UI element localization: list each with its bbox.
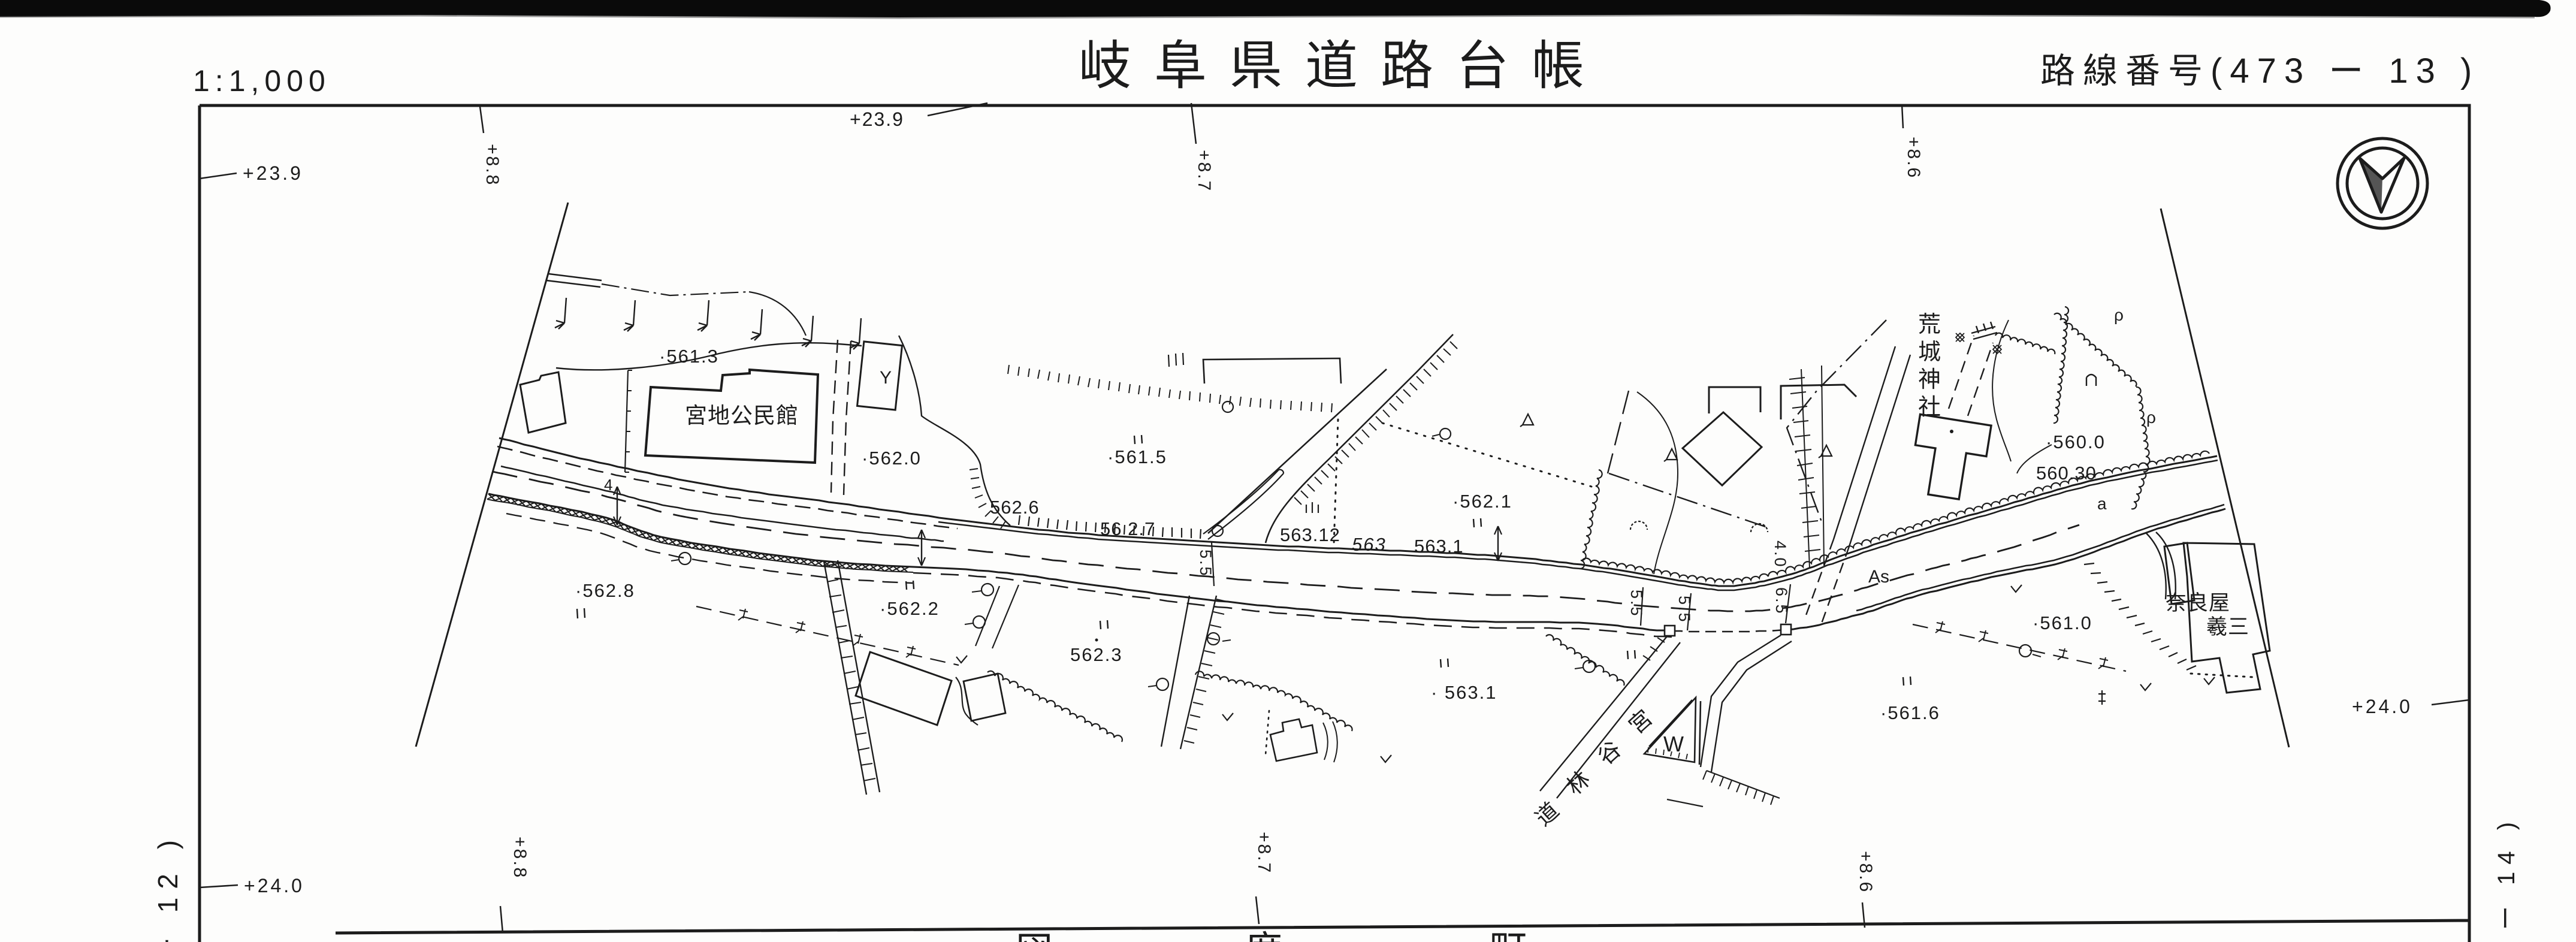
svg-text:度: 度 — [1245, 929, 1282, 942]
svg-text:563.1: 563.1 — [1414, 536, 1464, 557]
svg-text:· 563.1: · 563.1 — [1431, 682, 1497, 703]
svg-text:6.5: 6.5 — [1772, 587, 1790, 615]
svg-text:560.30: 560.30 — [2036, 463, 2097, 484]
svg-text:563.12: 563.12 — [1280, 524, 1340, 545]
svg-text:·562.0: ·562.0 — [862, 448, 922, 469]
svg-text:+23.9: +23.9 — [243, 162, 303, 184]
svg-text:1:1,000: 1:1,000 — [193, 64, 331, 98]
svg-text:562.3: 562.3 — [1070, 644, 1123, 665]
svg-text:·560.0: ·560.0 — [2046, 431, 2106, 452]
svg-text:荒: 荒 — [1918, 312, 1941, 337]
svg-text:·562.1: ·562.1 — [1452, 491, 1512, 512]
svg-text:As: As — [1868, 567, 1889, 587]
svg-text:562.6: 562.6 — [990, 497, 1040, 518]
svg-text:5.5: 5.5 — [1675, 596, 1693, 624]
svg-text:+8.8: +8.8 — [510, 837, 530, 879]
svg-text:5.5: 5.5 — [1627, 590, 1645, 618]
svg-text:W: W — [1663, 732, 1684, 756]
svg-text:·561.6: ·561.6 — [1880, 702, 1940, 723]
svg-text:城: 城 — [1918, 340, 1941, 365]
svg-text:·561.3: ·561.3 — [659, 346, 719, 367]
svg-text:+23.9: +23.9 — [850, 108, 904, 130]
svg-text:図: 図 — [1016, 931, 1053, 942]
svg-text:奈良屋: 奈良屋 — [2166, 591, 2230, 615]
svg-text:·562.2: ·562.2 — [880, 598, 940, 619]
svg-text:56 2.7: 56 2.7 — [1100, 518, 1155, 539]
svg-text:563: 563 — [1352, 534, 1387, 555]
svg-text:5.5: 5.5 — [1197, 549, 1215, 578]
svg-text:a: a — [2097, 494, 2107, 513]
svg-text:ー 14 ): ー 14 ) — [2493, 815, 2520, 930]
svg-text:+8.7: +8.7 — [1254, 832, 1274, 874]
svg-text:+8.6: +8.6 — [1904, 137, 1923, 179]
svg-text:羲三: 羲三 — [2206, 615, 2249, 639]
svg-text:4.0: 4.0 — [1771, 541, 1789, 569]
svg-text:·562.8: ·562.8 — [575, 580, 635, 601]
svg-text:路線番号(473 ー 13 ): 路線番号(473 ー 13 ) — [2040, 52, 2480, 90]
svg-text:岐阜県道路台帳: 岐阜県道路台帳 — [1079, 36, 1607, 95]
svg-text:+24.0: +24.0 — [2352, 696, 2412, 717]
svg-text:町: 町 — [1490, 928, 1527, 942]
svg-text:·561.5: ·561.5 — [1107, 446, 1167, 467]
svg-text:神: 神 — [1918, 367, 1941, 393]
svg-text:ρ: ρ — [2146, 408, 2156, 427]
svg-text:Y: Y — [880, 368, 892, 388]
svg-text:宮地公民館: 宮地公民館 — [685, 403, 799, 428]
svg-text:·561.0: ·561.0 — [2033, 612, 2092, 633]
svg-text:4: 4 — [604, 476, 612, 494]
svg-text:+24.0: +24.0 — [244, 875, 304, 896]
svg-text:+8.8: +8.8 — [482, 144, 502, 186]
svg-text:+8.6: +8.6 — [1856, 851, 1876, 893]
svg-text:ー 12 ): ー 12 ) — [152, 832, 183, 942]
svg-text:+8.7: +8.7 — [1194, 150, 1214, 192]
svg-text:ρ: ρ — [2114, 306, 2124, 324]
